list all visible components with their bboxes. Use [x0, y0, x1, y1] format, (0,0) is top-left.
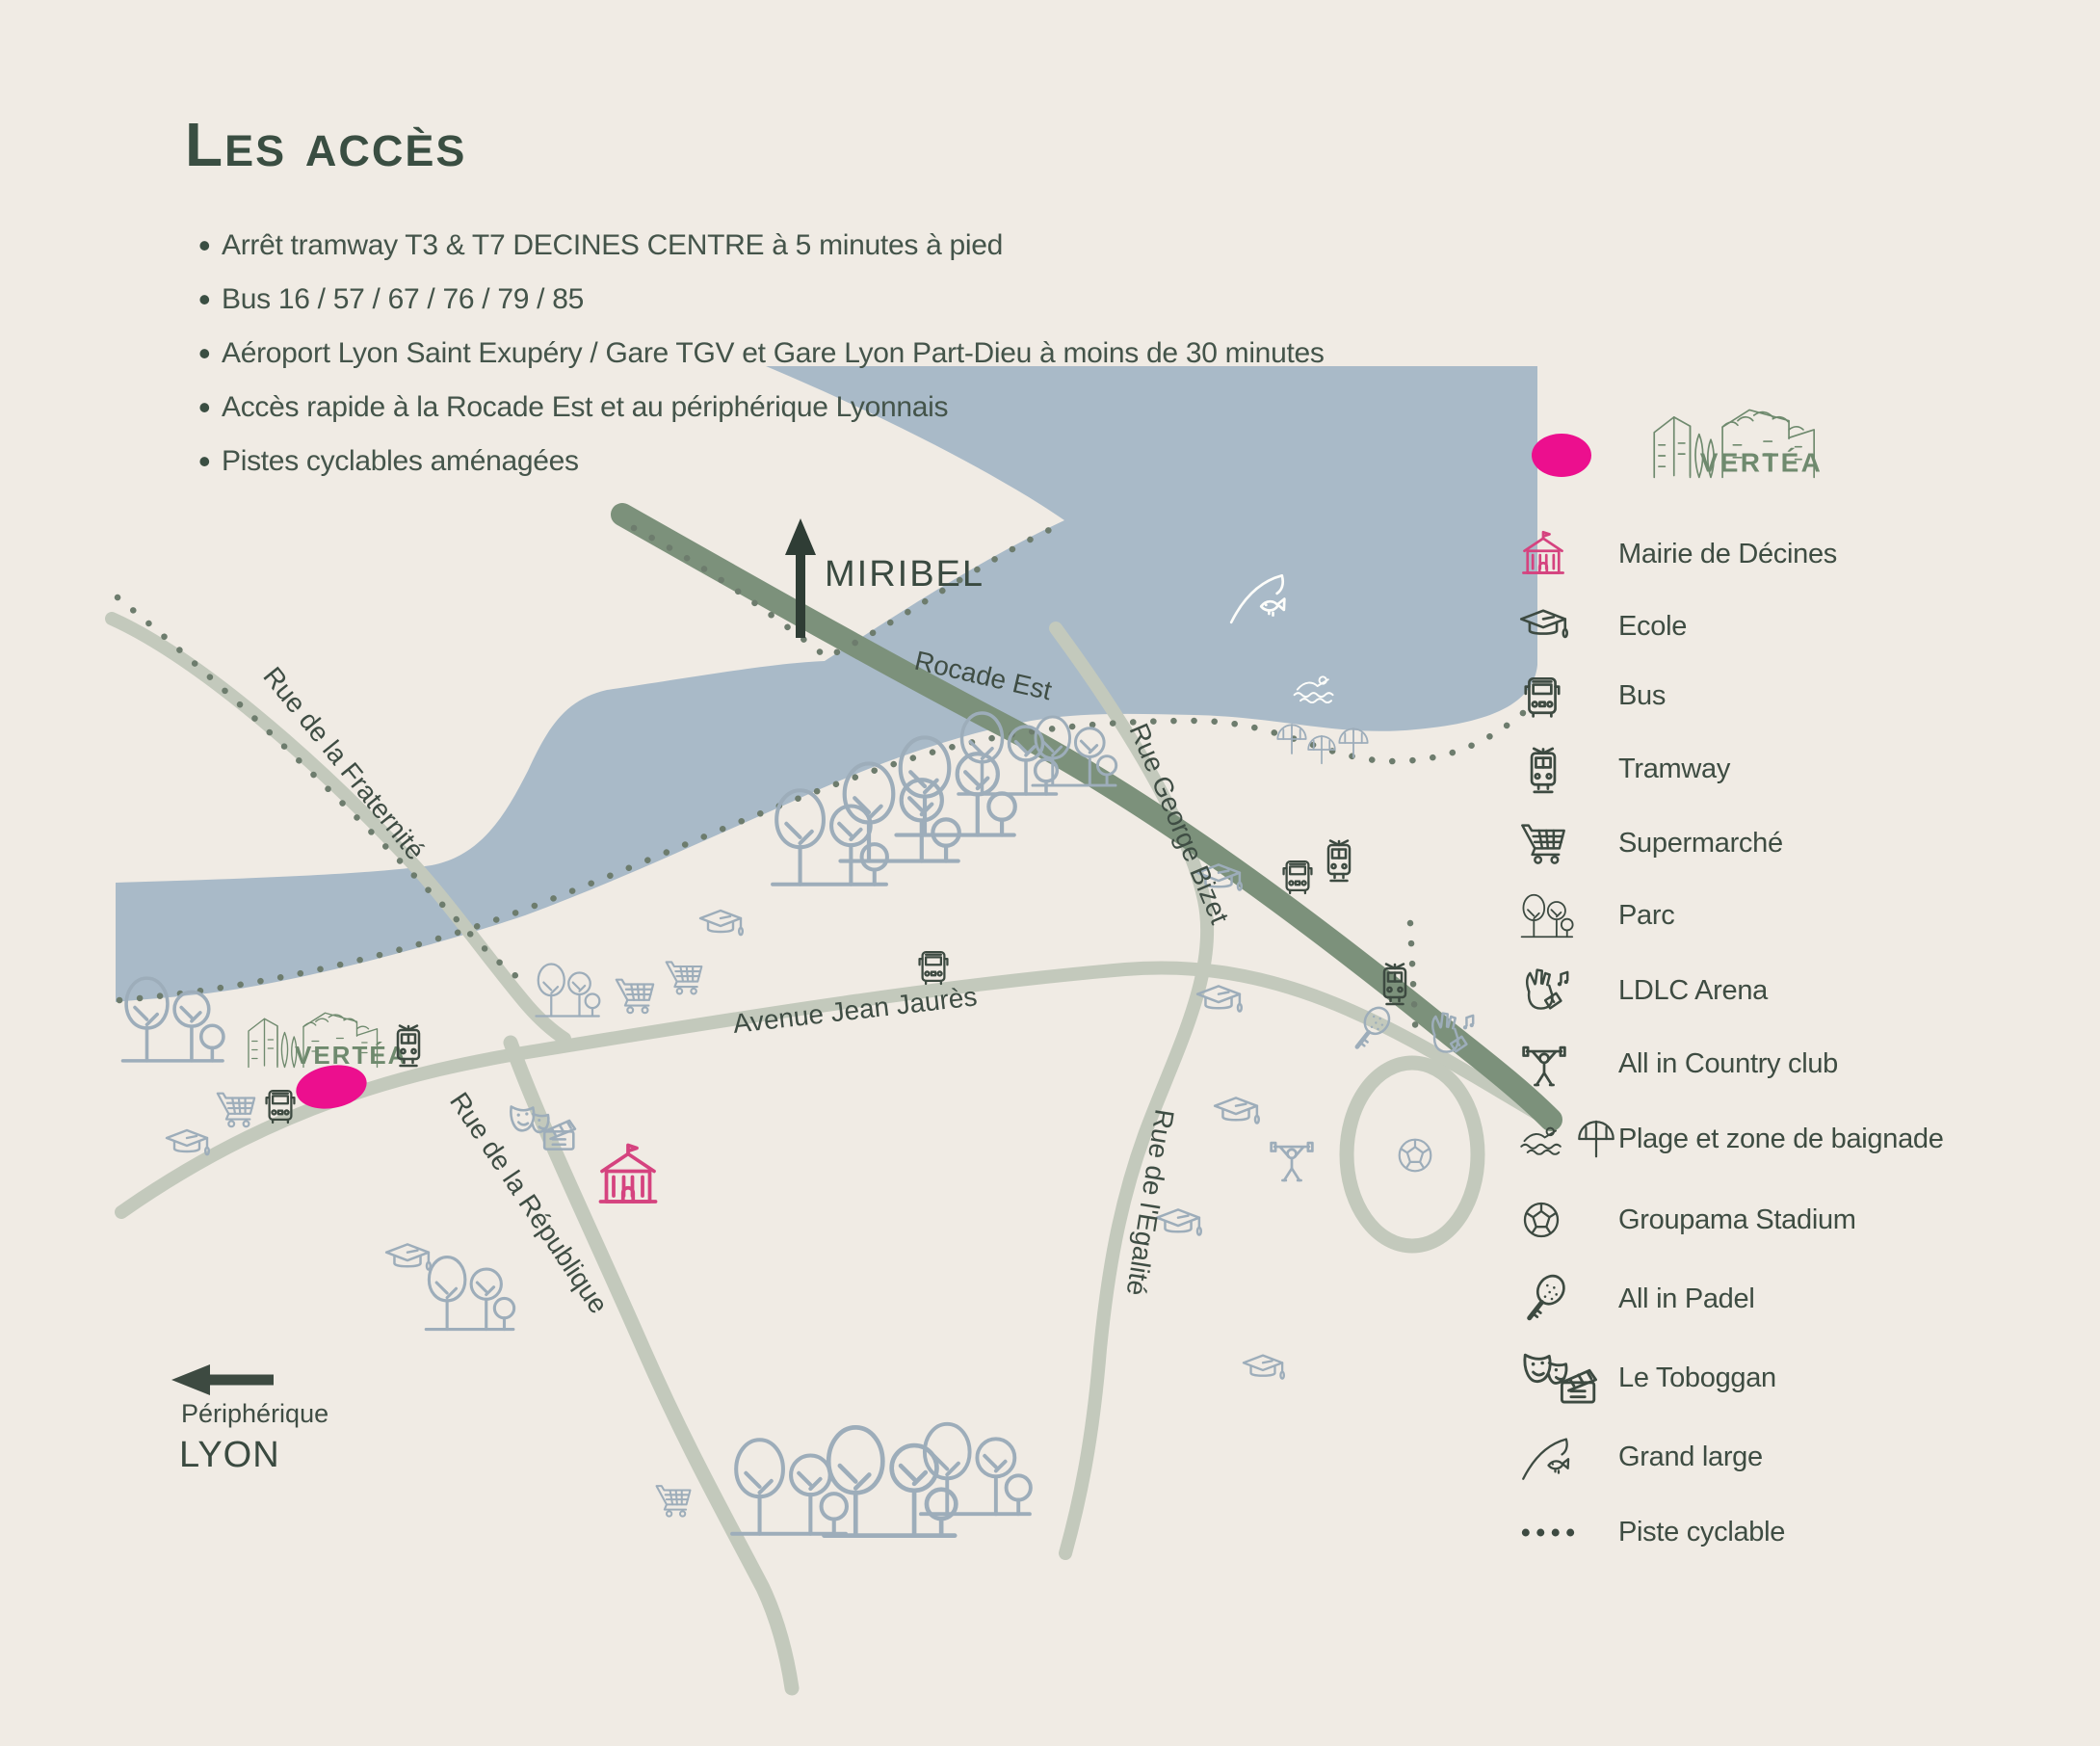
graduation-cap-icon — [1518, 601, 1618, 651]
legend-label: Bus — [1618, 680, 1666, 712]
legend-label: Tramway — [1618, 754, 1730, 785]
access-item: Arrêt tramway T3 & T7 DECINES CENTRE à 5… — [198, 229, 1325, 262]
legend-item-supermarche: Supermarché — [1518, 814, 1783, 872]
legend-label: Supermarché — [1618, 828, 1783, 860]
legend-item-grand-large: Grand large — [1518, 1428, 1763, 1486]
vertea-logo-text: VERTÉA — [295, 1041, 407, 1070]
legend-item-plage: Plage et zone de baignade — [1518, 1110, 1944, 1168]
legend-label: Piste cyclable — [1618, 1517, 1785, 1548]
legend-label: Grand large — [1618, 1442, 1763, 1473]
weightlifter-icon — [1518, 1038, 1618, 1090]
tramway-icon — [1328, 841, 1350, 882]
bus-icon — [1518, 672, 1618, 720]
shopping-cart-icon — [617, 980, 653, 1014]
graduation-cap-icon — [1215, 1098, 1259, 1123]
dotted-line-icon — [1518, 1507, 1618, 1558]
legend-item-groupama: Groupama Stadium — [1518, 1191, 1856, 1249]
graduation-cap-icon — [700, 911, 743, 935]
legend-label: Groupama Stadium — [1618, 1204, 1856, 1236]
page: VERTÉA — [0, 0, 2100, 1746]
legend-label: Mairie de Décines — [1618, 539, 1837, 570]
header: Les accès — [185, 114, 466, 175]
beach-umbrella-icon — [1308, 736, 1335, 764]
legend-item-piste-cyclable: Piste cyclable — [1518, 1503, 1785, 1561]
vertea-logo-text: VERTÉA — [1700, 448, 1823, 478]
legend-label: Ecole — [1618, 611, 1687, 643]
legend-label: LDLC Arena — [1618, 975, 1768, 1007]
mairie-icon — [1518, 529, 1618, 579]
legend-item-ldlc-arena: LDLC Arena — [1518, 962, 1768, 1019]
legend-label: Parc — [1618, 900, 1674, 932]
legend-item-ecole: Ecole — [1518, 597, 1687, 655]
label-bizet: Rue George Bizet — [1123, 719, 1235, 928]
legend-item-parc: Parc — [1518, 886, 1674, 944]
shopping-cart-icon — [1518, 818, 1618, 868]
legend-item-mairie: Mairie de Décines — [1518, 525, 1837, 583]
roundabout — [1347, 1063, 1478, 1246]
shopping-cart-icon — [218, 1094, 254, 1127]
legend-label: All in Country club — [1618, 1048, 1838, 1080]
legend-label: Plage et zone de baignade — [1618, 1124, 1944, 1155]
legend-item-tramway: Tramway — [1518, 740, 1730, 798]
bus-icon — [920, 952, 948, 984]
cycle-path — [1410, 923, 1416, 1043]
trees-icon — [825, 1427, 957, 1535]
padel-racket-icon — [1518, 1272, 1618, 1326]
soccer-ball-icon — [1400, 1140, 1431, 1172]
vertea-logo: VERTÉA — [1638, 389, 1836, 495]
access-item: Aéroport Lyon Saint Exupéry / Gare TGV e… — [198, 337, 1325, 370]
soccer-ball-icon — [1518, 1197, 1618, 1243]
fishing-icon — [1518, 1430, 1618, 1484]
rock-hand-icon — [1518, 965, 1618, 1017]
trees-icon — [1518, 891, 1618, 940]
peripherique-direction: Périphérique LYON — [171, 1364, 328, 1475]
beach-umbrella-icon — [1339, 728, 1367, 757]
legend-item-bus: Bus — [1518, 667, 1666, 725]
shopping-cart-icon — [667, 962, 702, 993]
legend-item-toboggan: Le Toboggan — [1518, 1349, 1776, 1407]
trees-icon — [537, 965, 600, 1017]
trees-icon — [426, 1257, 513, 1330]
beach-umbrella-icon — [1277, 725, 1305, 754]
weightlifter-icon — [1272, 1143, 1313, 1180]
graduation-cap-icon — [386, 1244, 431, 1269]
tramway-icon — [1518, 744, 1618, 794]
masks-clapper-icon — [1518, 1348, 1618, 1408]
access-item: Pistes cyclables aménagées — [198, 445, 1325, 478]
mairie-icon — [601, 1146, 656, 1203]
access-list: Arrêt tramway T3 & T7 DECINES CENTRE à 5… — [198, 229, 1325, 499]
label-republique: Rue de la République — [444, 1087, 614, 1319]
label-jaures: Avenue Jean Jaurès — [731, 981, 979, 1039]
access-item: Accès rapide à la Rocade Est et au périp… — [198, 391, 1325, 424]
bus-icon — [1284, 861, 1312, 893]
legend-label: Le Toboggan — [1618, 1362, 1776, 1394]
label-peripherique: Périphérique — [181, 1399, 328, 1428]
vertea-marker-legend — [1532, 434, 1591, 477]
shopping-cart-icon — [657, 1486, 691, 1517]
swimmer-umbrella-icon — [1518, 1117, 1618, 1161]
legend-item-padel: All in Padel — [1518, 1270, 1755, 1328]
graduation-cap-icon — [167, 1130, 209, 1154]
graduation-cap-icon — [1244, 1356, 1284, 1379]
access-item: Bus 16 / 57 / 67 / 76 / 79 / 85 — [198, 283, 1325, 316]
label-lyon: LYON — [179, 1435, 280, 1475]
legend-item-country-club: All in Country club — [1518, 1035, 1838, 1093]
legend-label: All in Padel — [1618, 1283, 1755, 1315]
page-title: Les accès — [185, 114, 466, 175]
label-miribel: MIRIBEL — [825, 554, 984, 595]
label-fraternite: Rue de la Fraternité — [257, 661, 431, 865]
